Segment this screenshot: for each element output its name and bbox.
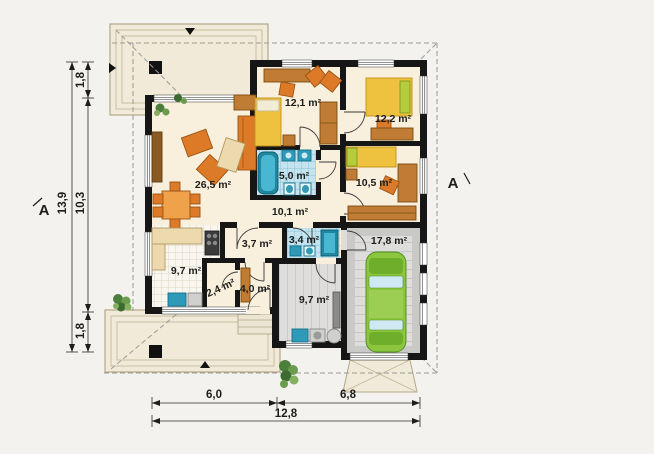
desk — [398, 164, 417, 202]
label-corridor: 3,7 m² — [242, 238, 273, 250]
window — [145, 232, 152, 276]
window — [358, 60, 394, 67]
driveway — [343, 360, 417, 392]
dim-left-bottom: 1,8 — [75, 322, 87, 339]
label-entry: 4,0 m² — [240, 283, 271, 295]
section-marker-left: A — [39, 202, 50, 219]
dim-bottom-total: 12,8 — [275, 408, 298, 420]
section-marker-right: A — [448, 175, 459, 192]
plant — [113, 294, 132, 312]
window — [154, 95, 246, 102]
window — [145, 135, 152, 187]
floor-plan: 26,5 m² 12,1 m² 12,2 m² 5,0 m² 10,5 m² 1… — [0, 0, 654, 454]
plant — [279, 360, 299, 388]
wardrobe — [371, 128, 413, 140]
window — [420, 303, 427, 325]
terrace-column — [149, 61, 162, 74]
bedroom2-furniture — [366, 78, 413, 140]
boiler — [327, 329, 341, 343]
kitchen-sink — [168, 293, 186, 306]
garage-door — [350, 353, 408, 360]
dim-left-total: 13,9 — [57, 192, 69, 214]
dim-bottom-right: 6,8 — [340, 389, 357, 401]
label-utility: 9,7 m² — [299, 294, 330, 306]
label-living-room: 26,5 m² — [195, 179, 232, 191]
car — [366, 252, 406, 352]
label-hall: 10,1 m² — [272, 206, 309, 218]
dining-table — [162, 191, 190, 219]
window — [420, 243, 427, 265]
desk — [264, 69, 310, 82]
label-bedroom-1: 12,1 m² — [285, 97, 322, 109]
utility-sink — [292, 329, 308, 342]
fridge — [188, 293, 202, 306]
label-wc: 3,4 m² — [289, 234, 320, 246]
label-bathroom: 5,0 m² — [279, 170, 310, 182]
window — [282, 60, 312, 67]
label-garage: 17,8 m² — [371, 235, 408, 247]
label-bedroom-2: 12,2 m² — [375, 113, 412, 125]
window — [420, 158, 427, 194]
label-bedroom-3: 10,5 m² — [356, 177, 393, 189]
terrace-glass-door — [162, 307, 260, 314]
washbasin — [290, 246, 301, 256]
floor-plan-drawing: 26,5 m² 12,1 m² 12,2 m² 5,0 m² 10,5 m² 1… — [0, 0, 654, 454]
label-kitchen: 9,7 m² — [171, 265, 202, 277]
terrace-column — [149, 345, 162, 358]
entry-porch — [238, 314, 276, 334]
dim-bottom-left: 6,0 — [206, 389, 222, 401]
window — [420, 273, 427, 295]
window — [420, 76, 427, 114]
dim-left-top: 1,8 — [75, 71, 87, 88]
dim-left-main: 10,3 — [75, 192, 87, 214]
